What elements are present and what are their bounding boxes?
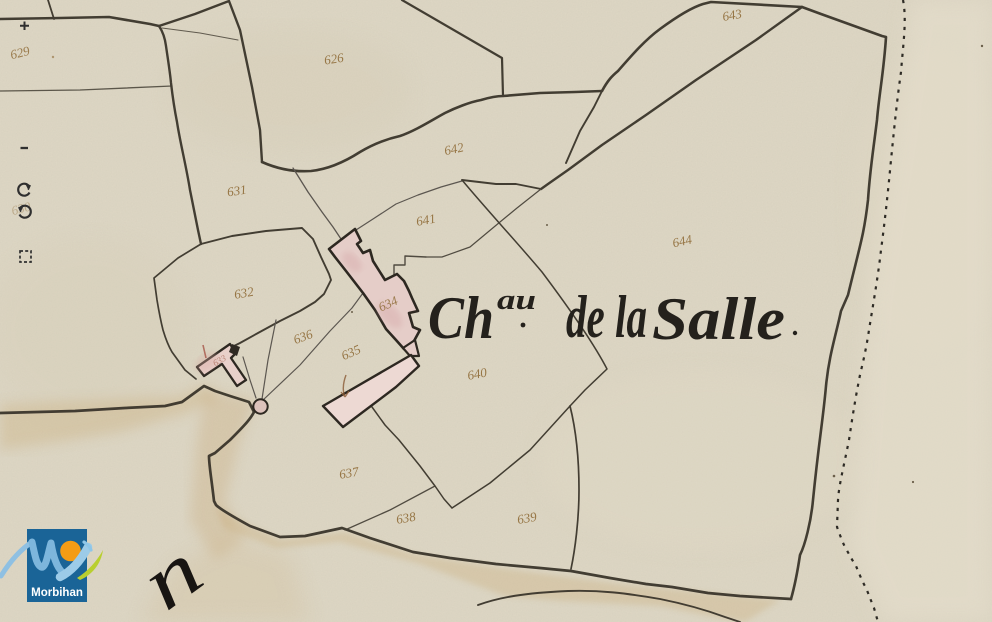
- svg-text:631: 631: [226, 182, 247, 200]
- svg-text:de la: de la: [566, 284, 647, 350]
- svg-text:au: au: [497, 285, 536, 316]
- svg-text:Salle: Salle: [652, 286, 785, 352]
- svg-text:Morbihan: Morbihan: [31, 587, 83, 599]
- svg-text:Ch: Ch: [428, 285, 494, 351]
- svg-text:626: 626: [323, 50, 345, 68]
